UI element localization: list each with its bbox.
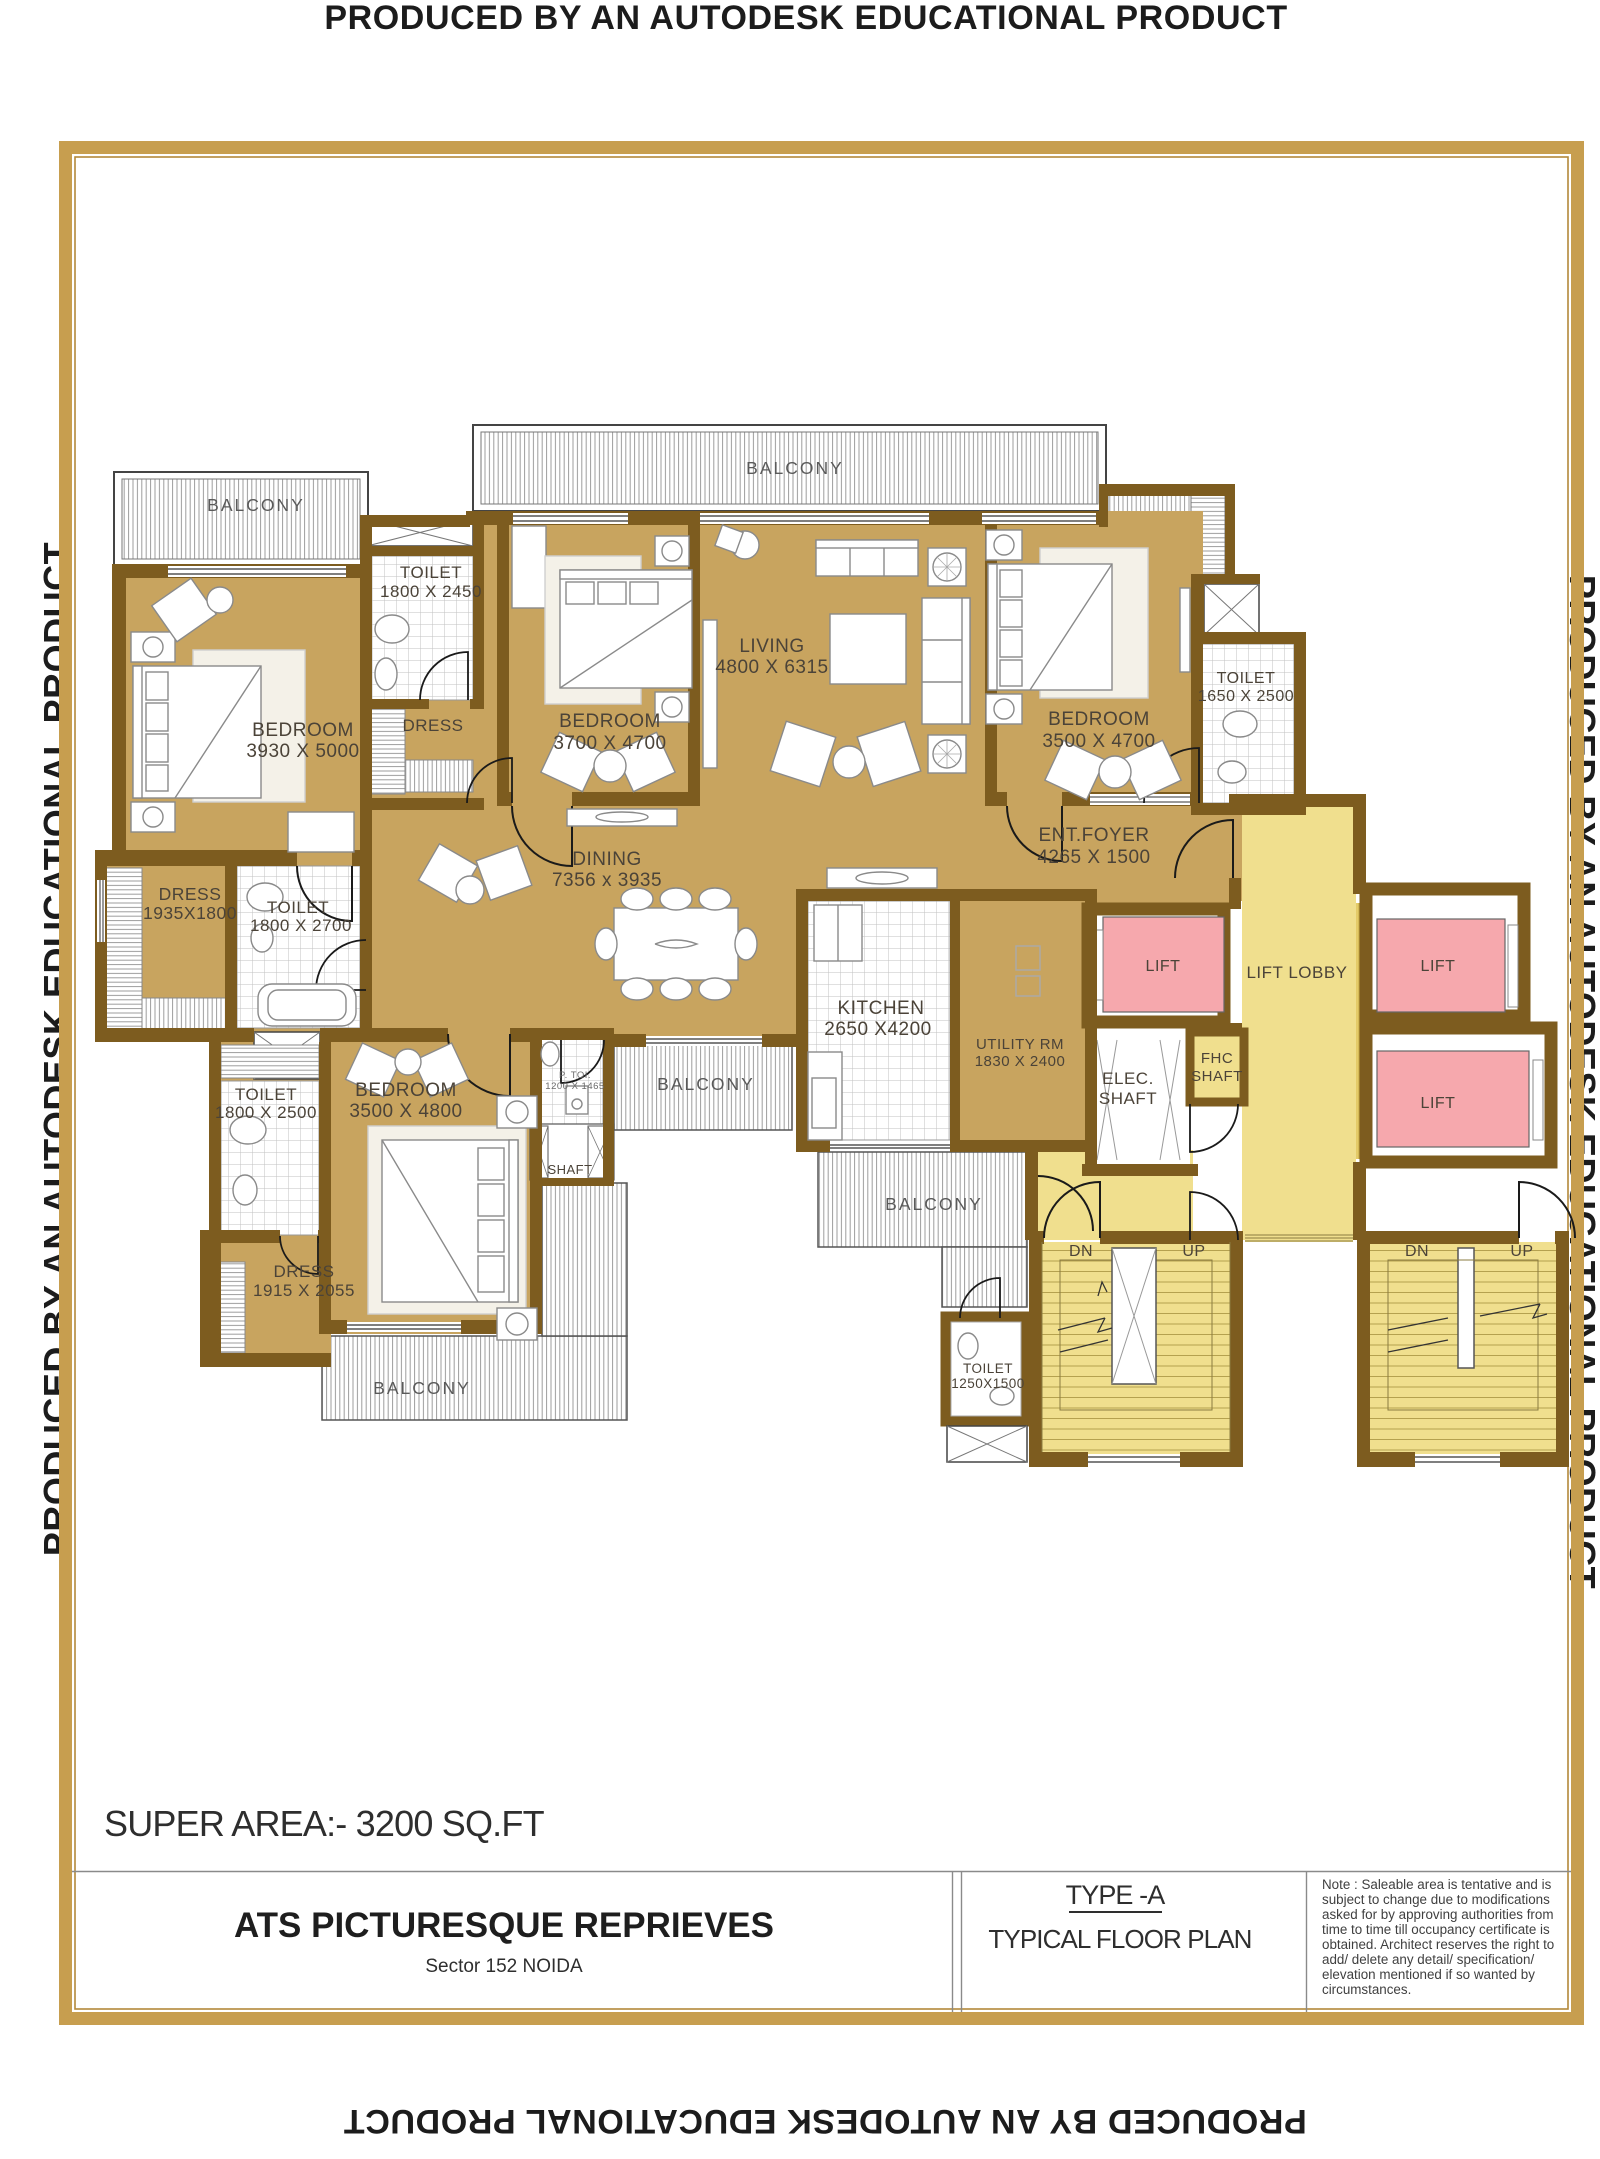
svg-text:time to time till occupancy ce: time to time till occupancy certificate … [1322,1922,1550,1937]
svg-text:1650 X 2500: 1650 X 2500 [1198,688,1294,705]
svg-text:PRODUCED BY AN AUTODESK EDUCAT: PRODUCED BY AN AUTODESK EDUCATIONAL PROD… [343,2102,1306,2140]
svg-text:BEDROOM: BEDROOM [1048,709,1150,730]
svg-text:LIFT: LIFT [1146,958,1181,975]
svg-text:UTILITY RM: UTILITY RM [976,1036,1064,1053]
svg-text:TOILET: TOILET [267,898,329,917]
svg-text:2650 X4200: 2650 X4200 [824,1019,932,1040]
svg-text:SUPER AREA:- 3200 SQ.FT: SUPER AREA:- 3200 SQ.FT [104,1803,545,1844]
svg-text:BEDROOM: BEDROOM [252,720,354,741]
svg-text:ELEC.: ELEC. [1102,1069,1154,1088]
svg-text:KITCHEN: KITCHEN [838,998,925,1019]
svg-text:1830 X 2400: 1830 X 2400 [975,1053,1066,1070]
svg-text:DINING: DINING [572,849,642,870]
svg-text:LIVING: LIVING [739,636,804,657]
svg-text:3500 X 4700: 3500 X 4700 [1042,731,1155,752]
svg-text:1935X1800: 1935X1800 [143,903,237,923]
svg-text:LIFT LOBBY: LIFT LOBBY [1246,963,1347,982]
svg-text:3500 X 4800: 3500 X 4800 [349,1101,462,1122]
svg-text:1915 X 2055: 1915 X 2055 [253,1281,355,1300]
svg-text:TOILET: TOILET [1217,670,1276,687]
svg-text:LIFT: LIFT [1421,958,1456,975]
svg-text:asked for by approving authori: asked for by approving authorities from [1322,1907,1553,1922]
svg-text:BALCONY: BALCONY [207,495,305,515]
svg-text:SHAFT: SHAFT [547,1162,592,1177]
svg-text:1800 X 2450: 1800 X 2450 [380,582,482,601]
svg-text:UP: UP [1510,1243,1533,1260]
svg-text:SHAFT: SHAFT [1191,1068,1243,1085]
svg-text:LIFT: LIFT [1421,1095,1456,1112]
svg-text:4800 X 6315: 4800 X 6315 [715,657,828,678]
svg-text:BEDROOM: BEDROOM [559,711,661,732]
svg-text:7356 x 3935: 7356 x 3935 [552,870,662,891]
svg-text:DRESS: DRESS [273,1262,334,1281]
svg-text:1800 X 2500: 1800 X 2500 [215,1103,317,1122]
svg-text:obtained. Architect reserves t: obtained. Architect reserves the right t… [1322,1937,1554,1952]
svg-text:PRODUCED BY AN AUTODESK EDUCAT: PRODUCED BY AN AUTODESK EDUCATIONAL PROD… [324,0,1287,37]
svg-text:subject to change due to modif: subject to change due to modifications [1322,1892,1550,1907]
svg-text:DN: DN [1405,1243,1429,1260]
svg-text:circumstances.: circumstances. [1322,1982,1411,1997]
svg-text:FHC: FHC [1201,1050,1233,1067]
svg-text:4265 X 1500: 4265 X 1500 [1037,847,1150,868]
svg-text:BALCONY: BALCONY [746,458,844,478]
svg-text:BEDROOM: BEDROOM [355,1080,457,1101]
svg-text:BALCONY: BALCONY [657,1074,755,1094]
svg-text:1250X1500: 1250X1500 [951,1376,1025,1391]
svg-text:Sector 152 NOIDA: Sector 152 NOIDA [425,1956,583,1977]
svg-text:DN: DN [1069,1243,1093,1260]
svg-text:ENT.FOYER: ENT.FOYER [1038,825,1149,846]
svg-text:UP: UP [1182,1243,1205,1260]
svg-text:TOILET: TOILET [235,1085,297,1104]
svg-text:P. TOI.: P. TOI. [559,1070,591,1081]
svg-text:TYPICAL FLOOR PLAN: TYPICAL FLOOR PLAN [988,1924,1251,1954]
svg-text:3700 X 4700: 3700 X 4700 [553,733,666,754]
svg-text:Note : Saleable area is tentat: Note : Saleable area is tentative and is [1322,1877,1552,1892]
svg-text:ATS PICTURESQUE REPRIEVES: ATS PICTURESQUE REPRIEVES [234,1906,774,1945]
svg-text:TYPE -A: TYPE -A [1066,1880,1166,1910]
svg-text:add/ delete any detail/ specif: add/ delete any detail/ specification/ [1322,1952,1534,1967]
svg-text:BALCONY: BALCONY [373,1378,471,1398]
svg-text:1800 X 2700: 1800 X 2700 [250,916,352,935]
svg-text:DRESS: DRESS [402,716,463,735]
svg-text:DRESS: DRESS [159,884,222,904]
svg-text:BALCONY: BALCONY [885,1194,983,1214]
svg-text:TOILET: TOILET [963,1361,1013,1376]
svg-text:3930 X 5000: 3930 X 5000 [246,741,359,762]
svg-text:1200 X 1465: 1200 X 1465 [545,1081,604,1092]
svg-text:elevation mentioned if so want: elevation mentioned if so wanted by [1322,1967,1535,1982]
svg-text:SHAFT: SHAFT [1099,1089,1157,1108]
svg-text:TOILET: TOILET [400,563,462,582]
